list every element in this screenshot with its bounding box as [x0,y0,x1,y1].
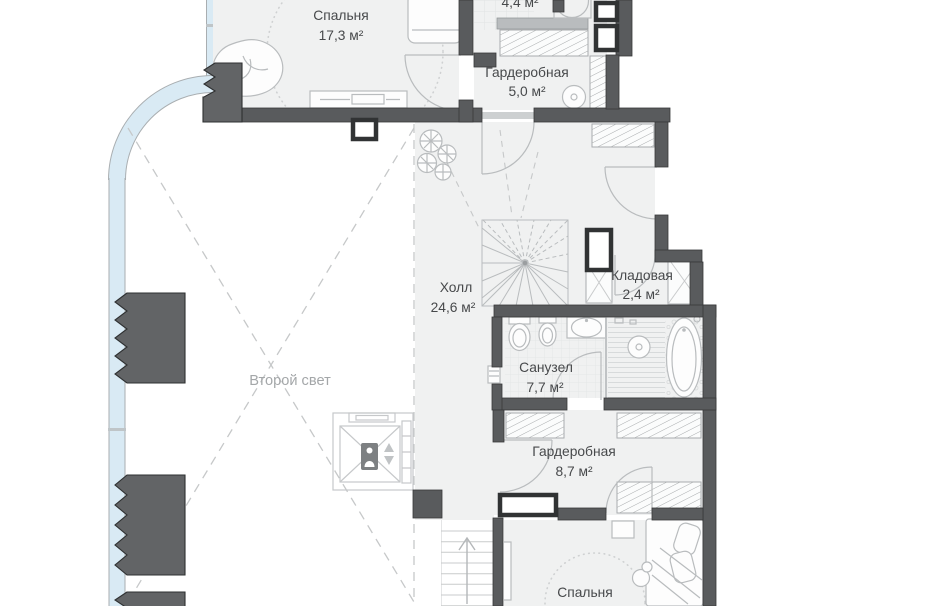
room-label-bedroom-bottom: Спальня [557,585,612,600]
staircase [441,520,493,606]
duct-shaft [500,495,556,515]
console-table [310,91,407,108]
rack [617,413,701,438]
curved-glass-wall [117,84,213,180]
nightstand [612,521,634,538]
shelf-bar [497,18,588,29]
duct-shaft [353,120,376,139]
room-area-bedroom-top: 17,3 м² [319,28,364,43]
elevator-arrows-icon [384,443,394,465]
duct-shaft [596,26,617,50]
floor-plan: Спальня 17,3 м² 4,4 м² Гардеробная 5,0 м… [0,0,926,606]
rack [592,124,654,147]
room-label-bathroom: Санузел [519,360,573,375]
radiator [503,542,511,600]
pier [115,592,185,606]
rack [506,413,564,438]
stair-center-post [523,261,528,266]
rack [500,30,588,56]
wall-device [488,366,500,383]
room-area-wardrobe-main: 8,7 м² [555,464,592,479]
rack [590,56,607,109]
facade-piers [115,63,242,606]
room-label-storage: Кладовая [611,268,673,283]
glass-mullion [108,428,126,431]
column [413,490,442,518]
bed [408,0,462,43]
bidet [539,317,556,346]
bathtub [667,316,702,397]
room-label-bedroom-top: Спальня [313,8,368,23]
pier [115,475,185,575]
room-label-wardrobe-main: Гардеробная [532,444,615,459]
room-area-storage: 2,4 м² [622,287,659,302]
duct-shaft [596,3,617,20]
elevator [333,413,413,490]
room-area-bath-top: 4,4 м² [501,0,538,10]
sink [567,317,606,338]
pier [115,293,185,383]
stair-up-arrow-icon [459,538,475,604]
floor-drain [563,86,586,109]
room-label-void: Второй свет [249,373,331,389]
room-label-wardrobe-top: Гардеробная [485,65,568,80]
door-threshold [482,112,534,119]
toilet [509,317,530,351]
room-area-wardrobe-top: 5,0 м² [508,84,545,99]
room-area-bathroom: 7,7 м² [526,380,563,395]
room-area-hall: 24,6 м² [431,300,476,315]
duct-shaft [587,230,611,270]
room-label-hall: Холл [440,280,473,295]
